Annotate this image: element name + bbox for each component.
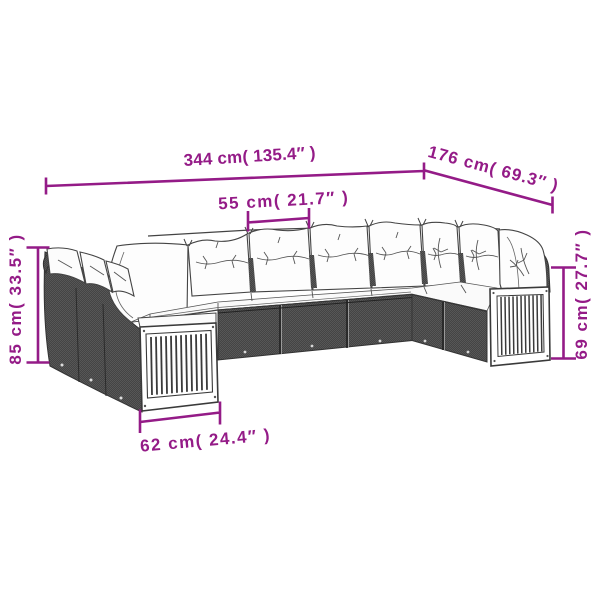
svg-text:69 cm( 27.7″ ): 69 cm( 27.7″ ): [572, 228, 591, 359]
svg-text:85 cm( 33.5″ ): 85 cm( 33.5″ ): [6, 233, 25, 364]
